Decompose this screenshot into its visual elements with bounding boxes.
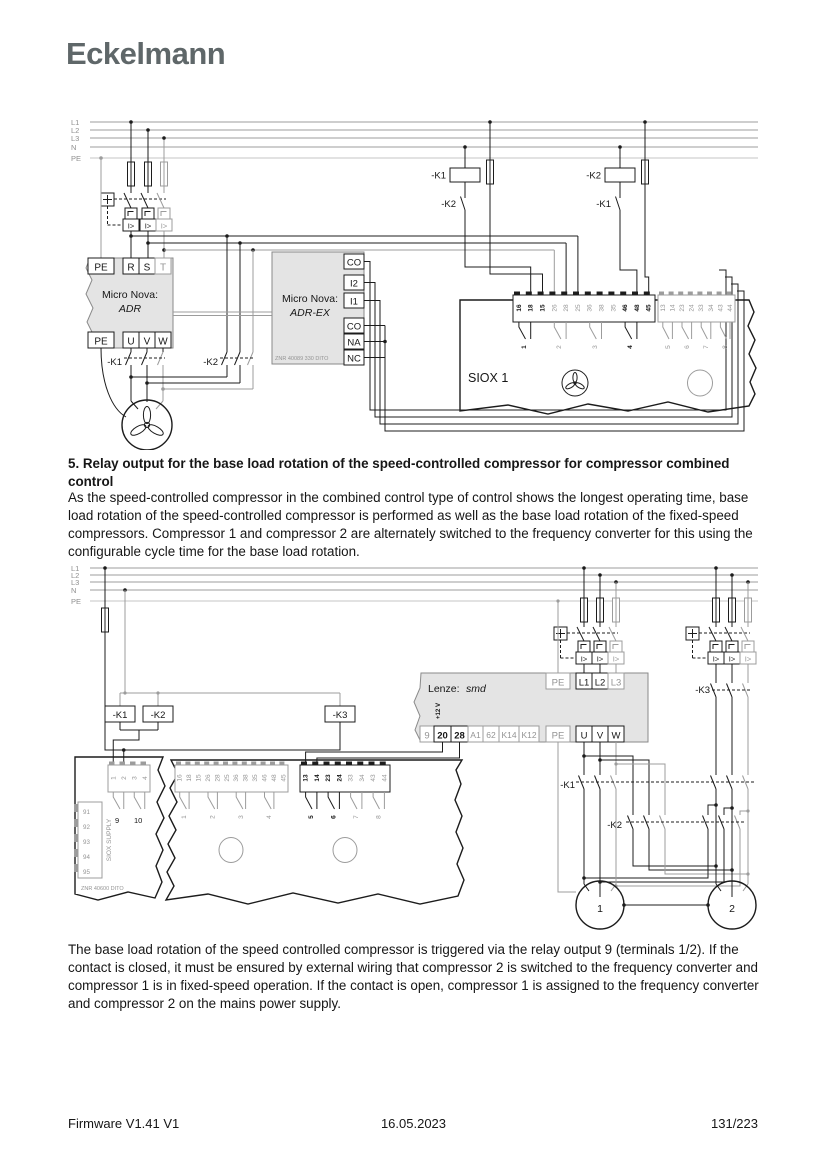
terminal-label: CO bbox=[347, 258, 361, 269]
overload-symbol: I> bbox=[161, 222, 168, 231]
footer-date: 16.05.2023 bbox=[0, 1116, 827, 1131]
terminal-label: 20 bbox=[437, 731, 448, 742]
terminal-label: V bbox=[144, 337, 151, 348]
terminal-number: 44 bbox=[381, 774, 388, 782]
terminal-label: W bbox=[612, 731, 621, 742]
terminal-label: A1 bbox=[470, 730, 481, 740]
micro-nova-adrex-unit: Micro Nova: ADR-EX ZNR 40089 330 DITO CO… bbox=[272, 252, 364, 365]
terminal-number: 45 bbox=[280, 774, 287, 782]
terminal-label: U bbox=[127, 337, 134, 348]
fan-icon bbox=[562, 370, 588, 396]
terminal-number: 25 bbox=[575, 304, 582, 312]
terminal-number: 38 bbox=[243, 774, 250, 782]
terminal-label: PE bbox=[94, 337, 108, 348]
relay-number: 10 bbox=[134, 816, 142, 825]
eckelmann-logo: Eckelmann bbox=[66, 36, 225, 72]
contactor-label: -K1 bbox=[107, 357, 122, 368]
terminal-number: 36 bbox=[587, 304, 594, 312]
terminal-number: 1 bbox=[110, 776, 117, 780]
relay-number: 7 bbox=[703, 345, 710, 349]
siox1-module: SIOX 1 16 18 15 26 28 25 36 38 35 46 48 … bbox=[460, 294, 756, 415]
terminal-number: 44 bbox=[727, 304, 734, 312]
overload-symbol: I> bbox=[613, 655, 620, 664]
terminal-number: 24 bbox=[689, 304, 696, 312]
terminal-label: I1 bbox=[350, 297, 358, 308]
terminal-label: S bbox=[144, 263, 151, 274]
terminal-label: 62 bbox=[486, 730, 496, 740]
terminal-label: 9 bbox=[424, 731, 429, 742]
relay-number: 8 bbox=[376, 815, 383, 819]
terminal-number: 23 bbox=[325, 774, 332, 782]
coil-label: -K2 bbox=[586, 171, 601, 182]
terminal-label: L3 bbox=[611, 678, 622, 689]
terminal-number: 94 bbox=[83, 854, 90, 861]
terminal-number: 28 bbox=[214, 774, 221, 782]
contactor-label: -K3 bbox=[695, 685, 710, 696]
terminal-number: 16 bbox=[516, 304, 523, 312]
siox-relay-module: 16 18 15 26 28 25 36 38 35 46 48 45 1 2 … bbox=[166, 760, 464, 904]
device-model: smd bbox=[466, 683, 487, 695]
terminal-label: CO bbox=[347, 322, 361, 333]
plus12v-label: +12 V bbox=[435, 702, 442, 719]
motor-number: 2 bbox=[729, 903, 735, 915]
terminal-number: 36 bbox=[233, 774, 240, 782]
motor-protection-switch: I> I> I> bbox=[101, 193, 172, 258]
aux-contact-label: -K2 bbox=[441, 199, 456, 210]
relay-number: 3 bbox=[238, 815, 245, 819]
terminal-number: 26 bbox=[551, 304, 558, 312]
coil-label: -K3 bbox=[333, 710, 348, 721]
terminal-number: 35 bbox=[610, 304, 617, 312]
relay-number: 4 bbox=[627, 345, 634, 349]
terminal-number: 38 bbox=[599, 304, 606, 312]
lamp-icon bbox=[333, 838, 357, 863]
relay-number: 3 bbox=[592, 345, 599, 349]
terminal-number: 92 bbox=[83, 824, 90, 831]
overload-symbol: I> bbox=[145, 222, 152, 231]
overload-symbol: I> bbox=[713, 655, 720, 664]
overload-symbol: I> bbox=[581, 655, 588, 664]
terminal-number: 28 bbox=[563, 304, 570, 312]
relay-contacts bbox=[306, 792, 385, 809]
terminal-label: V bbox=[597, 731, 604, 742]
relay-number: 8 bbox=[722, 345, 729, 349]
k1-coil-circuit: -K1 -K2 bbox=[431, 120, 542, 295]
terminal-label: PE bbox=[94, 263, 108, 274]
rail-label: PE bbox=[71, 154, 81, 163]
terminal-number: 43 bbox=[717, 304, 724, 312]
lamp-icon bbox=[688, 370, 713, 396]
part-number: ZNR 40089 330 DITO bbox=[275, 356, 329, 362]
section-heading: 5. Relay output for the base load rotati… bbox=[68, 455, 774, 491]
terminal-label: W bbox=[158, 337, 168, 348]
terminal-label: PE bbox=[552, 678, 565, 689]
terminal-number: 25 bbox=[224, 774, 231, 782]
terminal-number: 95 bbox=[83, 869, 90, 876]
rail-label: L3 bbox=[71, 134, 79, 143]
terminal-number: 26 bbox=[205, 774, 212, 782]
relay-contacts bbox=[180, 792, 274, 809]
relay-number: 2 bbox=[210, 815, 217, 819]
terminal-label: NA bbox=[347, 338, 361, 349]
terminal-number: 93 bbox=[83, 839, 90, 846]
terminal-number: 4 bbox=[142, 776, 149, 780]
relay-number: 1 bbox=[521, 345, 528, 349]
terminal-label: U bbox=[581, 731, 588, 742]
wiring-diagram-top: L1 L2 L3 N PE I> I> I> bbox=[68, 112, 760, 450]
terminal-number: 15 bbox=[540, 304, 547, 312]
terminal-number: 48 bbox=[271, 774, 278, 782]
micro-nova-adr-unit: PE R S T Micro Nova: ADR PE U V W bbox=[86, 156, 272, 348]
terminal-label: K12 bbox=[521, 730, 536, 740]
relay-number: 5 bbox=[665, 345, 672, 349]
device-model: ADR bbox=[118, 303, 142, 315]
terminal-number: 35 bbox=[252, 774, 259, 782]
terminal-number: 14 bbox=[669, 304, 676, 312]
body-paragraph: The base load rotation of the speed cont… bbox=[68, 941, 776, 1013]
terminal-number: 2 bbox=[121, 776, 128, 780]
part-number: ZNR 40600 DITO bbox=[81, 886, 124, 892]
terminal-label: 28 bbox=[454, 731, 465, 742]
terminal-number: 13 bbox=[660, 304, 667, 312]
terminal-number: 13 bbox=[303, 774, 310, 782]
overload-symbol: I> bbox=[729, 655, 736, 664]
relay-number: 7 bbox=[353, 815, 360, 819]
terminal-number: 18 bbox=[528, 304, 535, 312]
terminal-number: 16 bbox=[177, 774, 184, 782]
terminal-number: 91 bbox=[83, 809, 90, 816]
coil-label: -K1 bbox=[431, 171, 446, 182]
supply-label: SIOX SUPPLY bbox=[106, 818, 113, 861]
terminal-label: R bbox=[127, 263, 134, 274]
relay-number: 4 bbox=[266, 815, 273, 819]
terminal-number: 34 bbox=[708, 304, 715, 312]
power-rails: L1 L2 L3 N PE bbox=[71, 564, 758, 606]
relay-contacts bbox=[663, 322, 730, 339]
terminal-number: 3 bbox=[131, 776, 138, 780]
coil-label: -K2 bbox=[151, 710, 166, 721]
contactor-contacts-and-motor: -K1 -K2 bbox=[101, 348, 255, 450]
mains-supply-protection: I> I> I> -K3 bbox=[686, 566, 756, 775]
relay-contacts bbox=[113, 792, 145, 809]
body-paragraph: As the speed-controlled compressor in th… bbox=[68, 489, 776, 561]
overload-symbol: I> bbox=[745, 655, 752, 664]
terminal-label: L2 bbox=[595, 678, 606, 689]
power-rails: L1 L2 L3 N PE bbox=[71, 118, 758, 163]
changeover-contacts: -K1 -K2 1 bbox=[558, 742, 756, 929]
terminal-number: 34 bbox=[359, 774, 366, 782]
terminal-label: PE bbox=[552, 731, 565, 742]
terminal-number: 18 bbox=[186, 774, 193, 782]
footer-page-number: 131/223 bbox=[711, 1116, 758, 1131]
device-title: Micro Nova: bbox=[282, 293, 338, 305]
rail-label: PE bbox=[71, 597, 81, 606]
terminal-number: 23 bbox=[679, 304, 686, 312]
control-circuit: -K1 -K2 -K3 bbox=[102, 566, 356, 765]
module-label: SIOX 1 bbox=[468, 371, 508, 385]
terminal-label: T bbox=[160, 263, 166, 274]
main-fuses bbox=[128, 120, 168, 193]
relay-contacts bbox=[519, 322, 637, 339]
coil-label: -K1 bbox=[113, 710, 128, 721]
overload-symbol: I> bbox=[128, 222, 135, 231]
contactor-label: -K2 bbox=[203, 357, 218, 368]
relay-number: 9 bbox=[115, 816, 119, 825]
document-page: Eckelmann L1 L2 L3 N PE bbox=[0, 0, 827, 1169]
terminal-number: 46 bbox=[262, 774, 269, 782]
terminal-number: 46 bbox=[622, 304, 629, 312]
terminal-label: NC bbox=[347, 354, 361, 365]
relay-number: 6 bbox=[684, 345, 691, 349]
contactor-label: -K1 bbox=[560, 780, 575, 791]
terminal-label: K14 bbox=[501, 730, 516, 740]
terminal-number: 33 bbox=[698, 304, 705, 312]
motor-number: 1 bbox=[597, 903, 603, 915]
rail-label: N bbox=[71, 586, 76, 595]
device-brand: Lenze: bbox=[428, 683, 460, 695]
terminal-number: 48 bbox=[634, 304, 641, 312]
fan-motor-icon bbox=[122, 400, 172, 450]
relay-number: 2 bbox=[556, 345, 563, 349]
terminal-label: I2 bbox=[350, 279, 358, 290]
rail-label: N bbox=[71, 143, 76, 152]
terminal-number: 14 bbox=[314, 774, 321, 782]
lenze-frequency-converter: Lenze: smd +12 V PE L1 L2 L3 9 20 28 A1 … bbox=[414, 673, 648, 742]
overload-symbol: I> bbox=[597, 655, 604, 664]
terminal-number: 43 bbox=[370, 774, 377, 782]
terminal-label: L1 bbox=[579, 678, 590, 689]
lamp-icon bbox=[219, 838, 243, 863]
siox-supply-module: 1 2 3 4 9 10 91 92 93 94 95 SIOX SUPPLY … bbox=[75, 757, 165, 900]
wiring-diagram-bottom: L1 L2 L3 N PE -K1 -K2 -K3 bbox=[68, 560, 760, 940]
relay-number: 1 bbox=[181, 815, 188, 819]
terminal-number: 24 bbox=[336, 774, 343, 782]
k2-coil-circuit: -K2 -K1 bbox=[586, 120, 648, 295]
relay-number: 5 bbox=[308, 815, 315, 819]
aux-contact-label: -K1 bbox=[596, 199, 611, 210]
device-model: ADR-EX bbox=[289, 307, 331, 319]
terminal-number: 33 bbox=[348, 774, 355, 782]
terminal-number: 45 bbox=[646, 304, 653, 312]
relay-number: 6 bbox=[331, 815, 338, 819]
device-title: Micro Nova: bbox=[102, 289, 158, 301]
contactor-label: -K2 bbox=[607, 820, 622, 831]
terminal-number: 15 bbox=[196, 774, 203, 782]
